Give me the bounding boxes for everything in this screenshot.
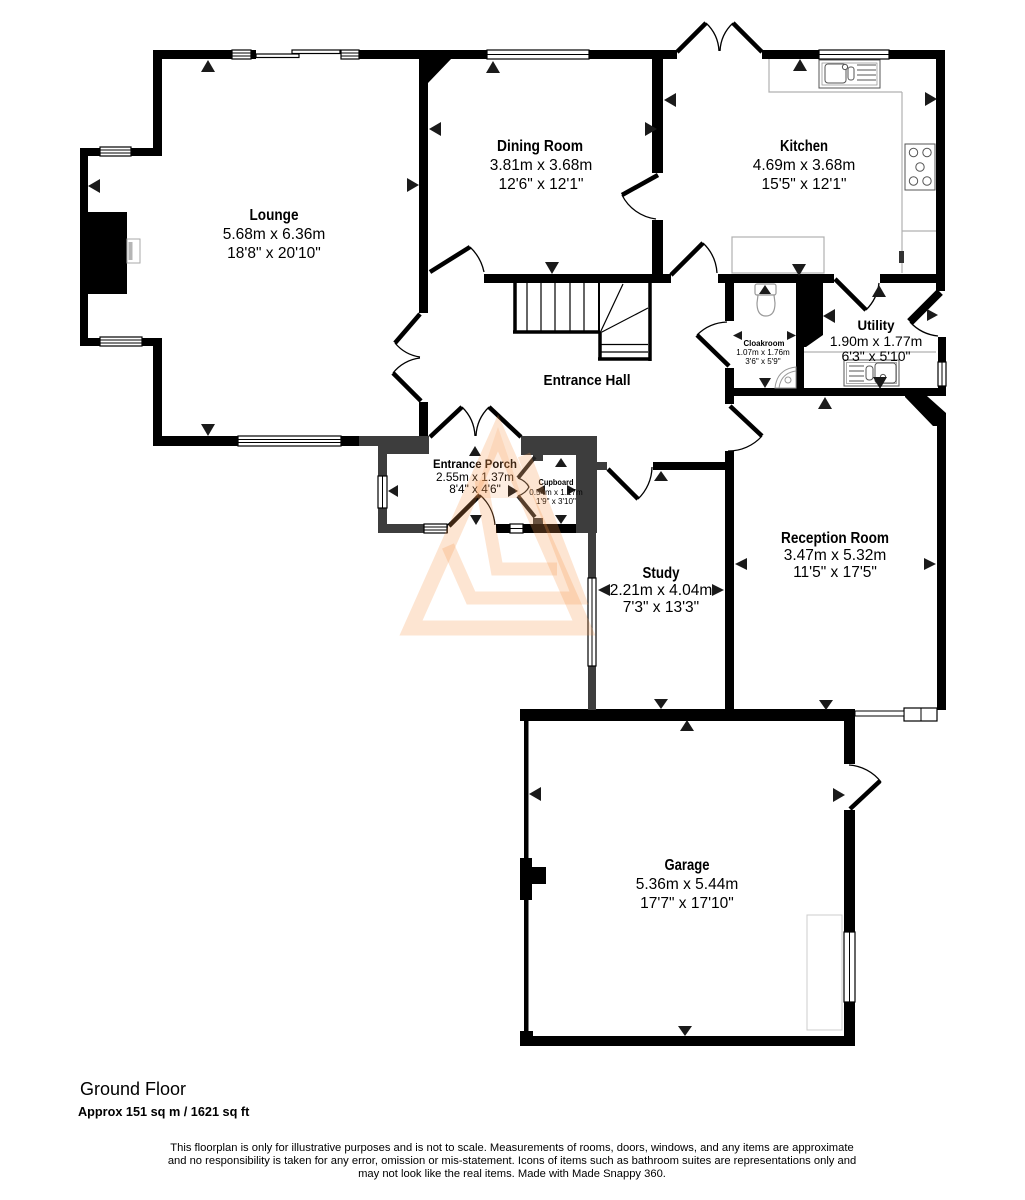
svg-text:7'3" x 13'3": 7'3" x 13'3" (623, 599, 699, 616)
svg-text:Reception Room: Reception Room (781, 530, 889, 547)
svg-text:3'6" x 5'9": 3'6" x 5'9" (745, 357, 781, 366)
svg-text:3.81m x 3.68m: 3.81m x 3.68m (490, 157, 593, 174)
svg-text:may not look like the real ite: may not look like the real items. Made w… (358, 1168, 666, 1180)
svg-text:12'6" x 12'1": 12'6" x 12'1" (498, 176, 583, 193)
svg-text:3.47m x 5.32m: 3.47m x 5.32m (784, 547, 887, 564)
svg-text:Study: Study (643, 565, 680, 582)
svg-text:and no responsibility is taken: and no responsibility is taken for any e… (168, 1155, 856, 1167)
svg-text:Entrance Hall: Entrance Hall (544, 372, 631, 389)
svg-text:Kitchen: Kitchen (780, 138, 828, 155)
svg-text:Ground Floor: Ground Floor (80, 1079, 186, 1099)
svg-text:18'8" x 20'10": 18'8" x 20'10" (227, 245, 321, 262)
svg-text:Lounge: Lounge (250, 207, 299, 224)
svg-text:2.21m x 4.04m: 2.21m x 4.04m (610, 582, 713, 599)
svg-text:Cupboard: Cupboard (539, 478, 574, 487)
svg-text:1.07m x 1.76m: 1.07m x 1.76m (736, 348, 790, 357)
svg-text:5.36m x 5.44m: 5.36m x 5.44m (636, 876, 739, 893)
svg-text:17'7" x 17'10": 17'7" x 17'10" (640, 895, 734, 912)
svg-text:5.68m x 6.36m: 5.68m x 6.36m (223, 226, 326, 243)
svg-text:Garage: Garage (665, 857, 710, 874)
svg-text:11'5" x 17'5": 11'5" x 17'5" (793, 564, 877, 581)
svg-text:Utility: Utility (858, 317, 895, 333)
svg-text:4.69m x 3.68m: 4.69m x 3.68m (753, 157, 856, 174)
svg-text:6'3" x 5'10": 6'3" x 5'10" (842, 348, 911, 364)
svg-text:15'5" x 12'1": 15'5" x 12'1" (761, 176, 846, 193)
svg-text:1.90m x 1.77m: 1.90m x 1.77m (830, 333, 923, 349)
svg-text:Approx 151 sq m / 1621 sq ft: Approx 151 sq m / 1621 sq ft (78, 1105, 250, 1119)
svg-text:Cloakroom: Cloakroom (744, 339, 785, 348)
svg-text:Dining Room: Dining Room (497, 138, 583, 155)
svg-text:This floorplan is only for ill: This floorplan is only for illustrative … (170, 1142, 853, 1154)
